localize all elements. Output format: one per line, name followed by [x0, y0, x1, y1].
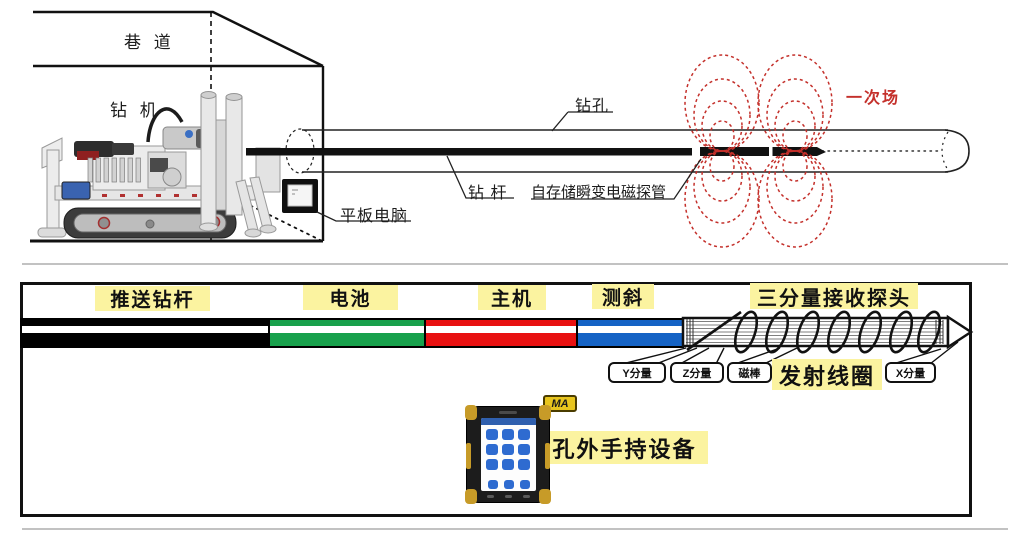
control-screen [62, 182, 90, 199]
receiver-label: 三分量接收探头 [750, 283, 918, 309]
mast-cylinder [201, 95, 216, 225]
device-button [487, 495, 494, 498]
device-corner-pad [539, 405, 551, 420]
primary-field-label: 一次场 [846, 84, 900, 108]
push-rod-label: 推送钻杆 [95, 286, 210, 311]
app-icon [486, 429, 498, 440]
app-icon [488, 480, 498, 489]
receiver-tube [683, 309, 971, 355]
host-label: 主机 [478, 285, 546, 310]
device-button [523, 495, 530, 498]
rig-label: 钻 机 [110, 96, 161, 121]
app-icon [502, 444, 514, 455]
device-corner-pad [539, 489, 551, 504]
app-icon [520, 480, 530, 489]
drill-rod [246, 147, 826, 156]
handheld-device-illustration [466, 406, 550, 503]
app-icon [518, 459, 530, 470]
borehole-end-rim [942, 132, 948, 170]
device-side-rail [545, 443, 550, 469]
probe-label: 自存储瞬变电磁探管 [531, 181, 666, 202]
device-app-grid [481, 425, 536, 472]
tunnel-label: 巷 道 [124, 28, 175, 53]
incline-label: 测斜 [592, 284, 654, 309]
app-icon [502, 429, 514, 440]
rod-rack [88, 158, 141, 182]
device-status-bar [481, 418, 536, 425]
tag-magnet-rod: 磁棒 [727, 362, 772, 383]
tag-x-component: X分量 [885, 362, 936, 383]
handheld-label: 孔外手持设备 [541, 431, 708, 464]
app-icon [518, 429, 530, 440]
tag-z-component: Z分量 [670, 362, 724, 383]
borehole-label: 钻孔 [575, 92, 609, 116]
coil-label: 发射线圈 [772, 359, 882, 390]
app-icon [518, 444, 530, 455]
tube-arrow-tip [948, 317, 971, 347]
borehole-end-cap [945, 130, 969, 172]
device-corner-pad [465, 405, 477, 420]
device-screen [481, 418, 536, 491]
tablet-monitor-icon [282, 179, 318, 213]
device-speaker [499, 411, 517, 414]
tablet-label: 平板电脑 [340, 202, 408, 226]
device-side-rail [466, 443, 471, 469]
device-button [505, 495, 512, 498]
battery-label: 电池 [303, 285, 398, 310]
rod-label: 钻 杆 [468, 179, 507, 203]
diagram-canvas: 巷 道 钻 机 钻孔 钻 杆 自存储瞬变电磁探管 平板电脑 一次场 推送钻杆 电… [0, 0, 1014, 534]
app-icon [486, 444, 498, 455]
device-corner-pad [465, 489, 477, 504]
tag-y-component: Y分量 [608, 362, 666, 383]
app-icon [504, 480, 514, 489]
device-dock [481, 480, 536, 489]
app-icon [486, 459, 498, 470]
app-icon [502, 459, 514, 470]
